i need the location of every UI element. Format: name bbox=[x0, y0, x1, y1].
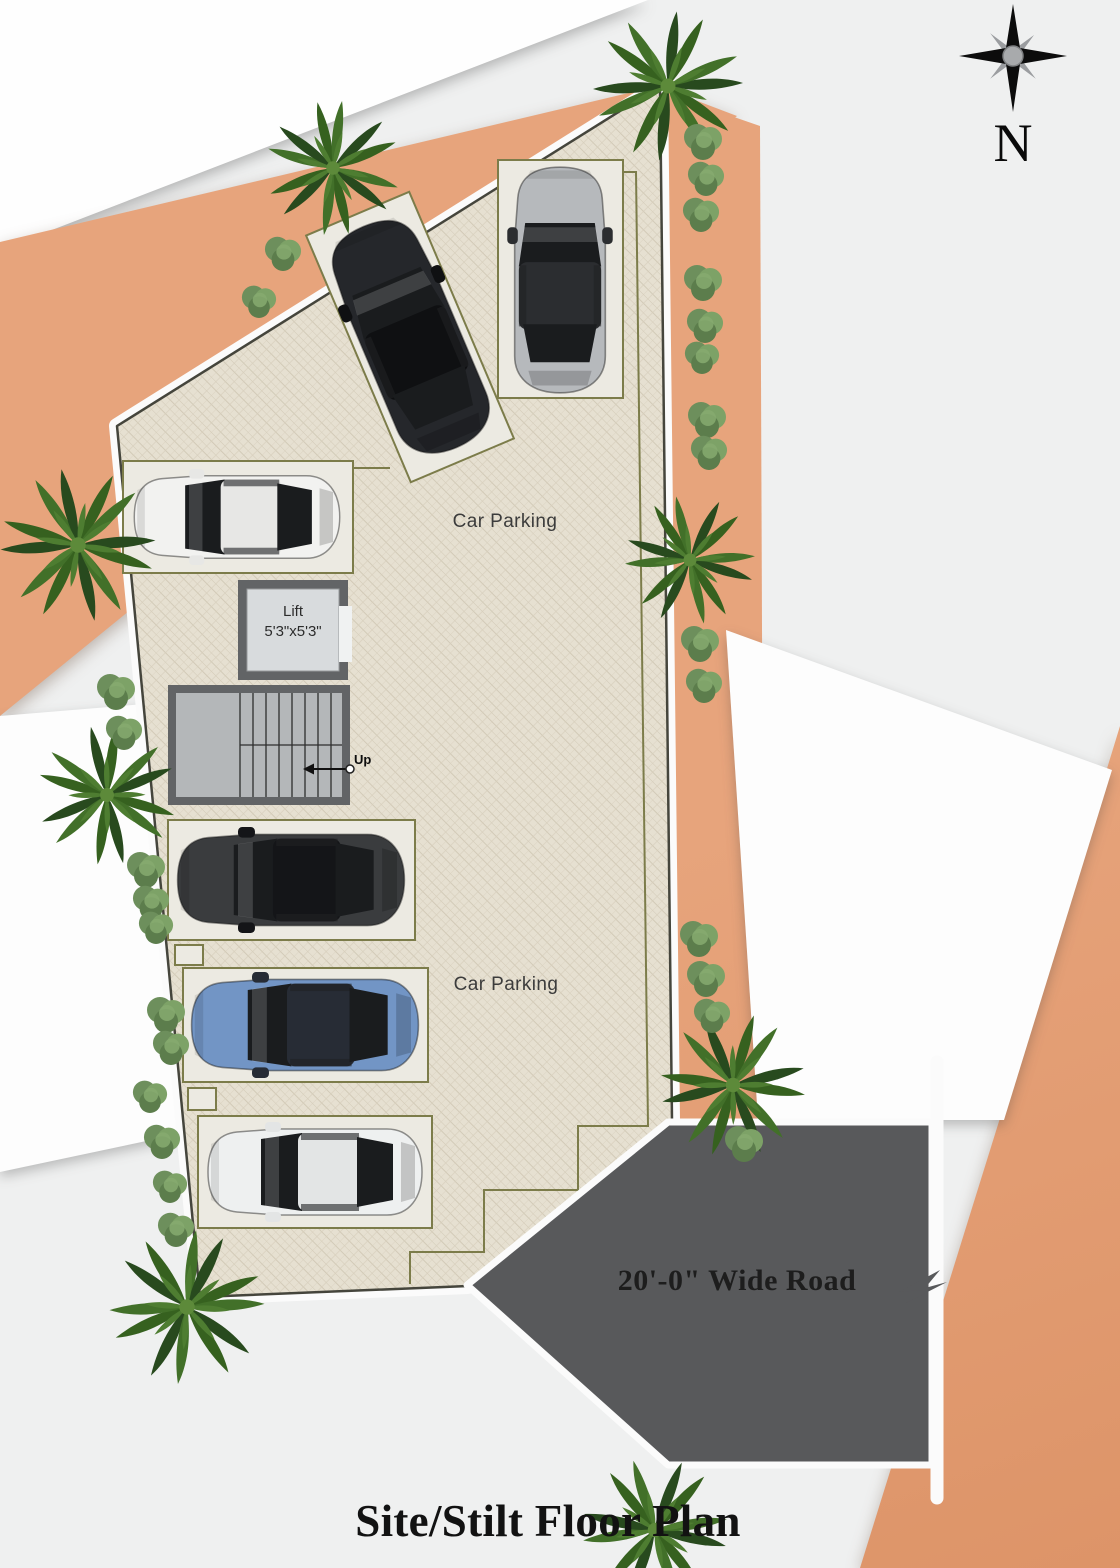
car-white-sedan bbox=[124, 469, 350, 565]
stairs-up-label: Up bbox=[354, 752, 371, 767]
car-parking-label-bottom: Car Parking bbox=[454, 974, 559, 996]
paving-pad bbox=[175, 945, 203, 965]
car-parking-label-top: Car Parking bbox=[453, 511, 558, 533]
paving-pad bbox=[188, 1088, 216, 1110]
compass-north-label: N bbox=[953, 112, 1073, 174]
car-silver-hatchback bbox=[503, 164, 617, 396]
car-white-sedan-bottom bbox=[200, 1122, 430, 1222]
lift-door bbox=[339, 606, 352, 662]
car-dark-gray-sedan bbox=[172, 827, 410, 933]
compass-rose-icon bbox=[953, 0, 1073, 120]
car-blue-hatchback bbox=[187, 972, 423, 1078]
compass: N bbox=[953, 0, 1073, 175]
staircase bbox=[168, 685, 354, 805]
lift-name: Lift bbox=[247, 602, 339, 622]
lift-label: Lift 5'3"x5'3" bbox=[247, 602, 339, 641]
lift-dimensions: 5'3"x5'3" bbox=[247, 622, 339, 642]
site-plan-canvas: Car Parking Car Parking Lift 5'3"x5'3" U… bbox=[0, 0, 1120, 1568]
page-title: Site/Stilt Floor Plan bbox=[355, 1495, 740, 1547]
road-width-label: 20'-0" Wide Road bbox=[618, 1264, 857, 1298]
